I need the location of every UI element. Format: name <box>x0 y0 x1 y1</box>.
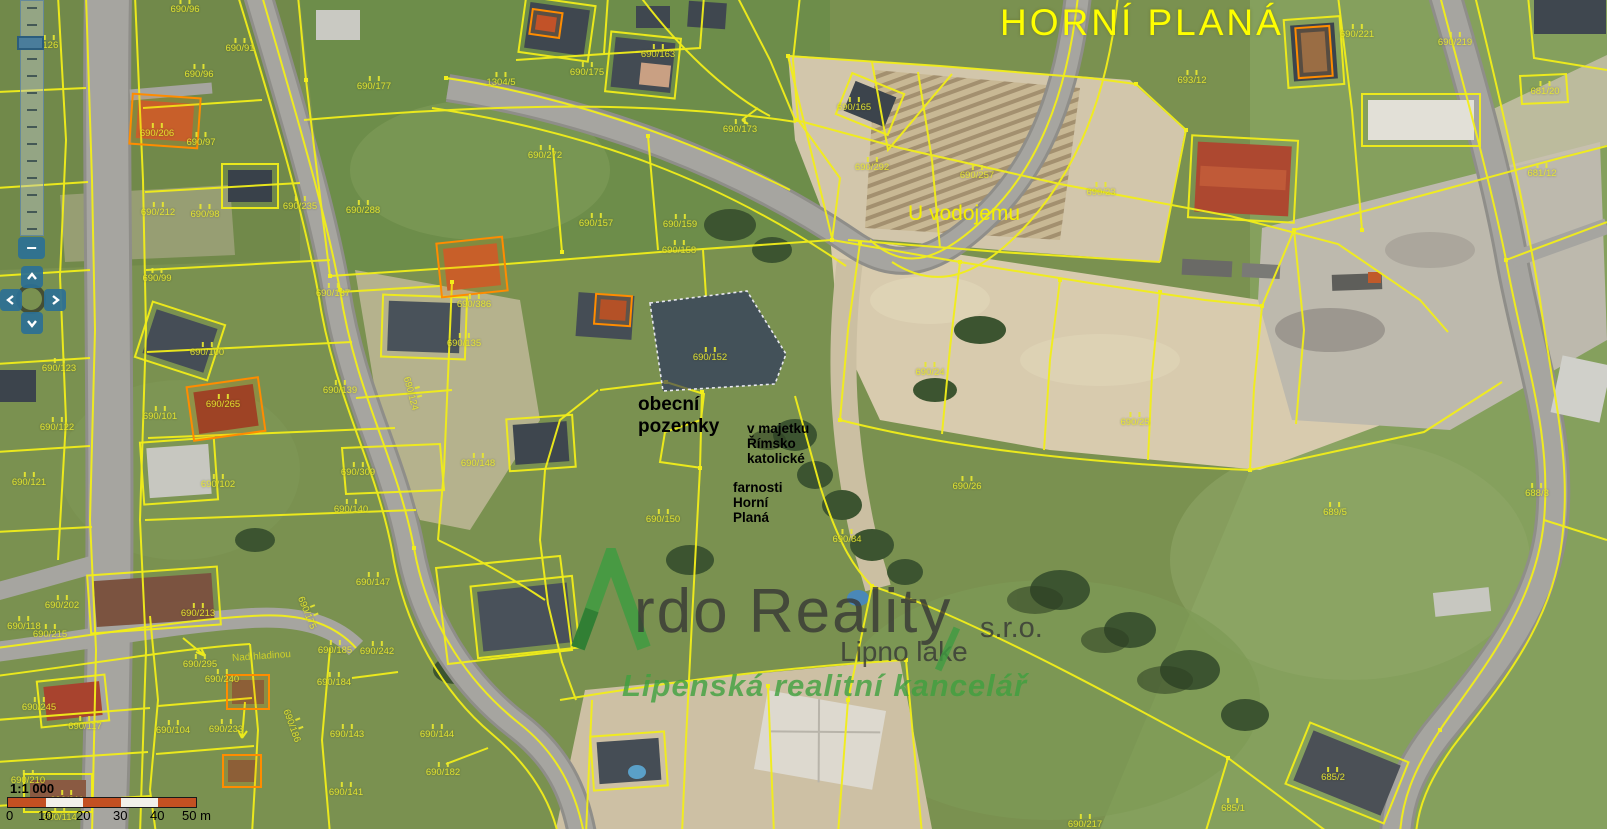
pan-down-button[interactable] <box>21 312 43 334</box>
scale-tick: 20 <box>76 808 90 823</box>
scale-tick: 10 <box>38 808 52 823</box>
church-ownership-annotation-2: farnosti Horní Planá <box>733 480 783 525</box>
zoom-out-button[interactable]: − <box>18 237 45 259</box>
scale-tick: 50 m <box>182 808 211 823</box>
pan-left-button[interactable] <box>0 289 22 311</box>
scale-tick: 40 <box>150 808 164 823</box>
chevron-down-icon <box>26 317 38 329</box>
chevron-up-icon <box>26 271 38 283</box>
area-label: U vodojemu <box>908 202 1020 226</box>
map-viewport[interactable]: 690/96690/91690/96690/1771304/5690/20669… <box>0 0 1607 829</box>
pan-up-button[interactable] <box>21 266 43 288</box>
chevron-left-icon <box>5 294 17 306</box>
scale-tick-labels: 0 10 20 30 40 50 m <box>6 808 221 824</box>
scale-tick: 30 <box>113 808 127 823</box>
aerial-basemap <box>0 0 1607 829</box>
scale-tick: 0 <box>6 808 13 823</box>
pan-right-button[interactable] <box>44 289 66 311</box>
map-scale: 1:1 000 0 10 20 30 40 50 m <box>6 781 221 827</box>
scale-ratio: 1:1 000 <box>10 781 54 796</box>
chevron-right-icon <box>49 294 61 306</box>
scale-bar <box>7 797 197 808</box>
municipal-land-annotation: obecní pozemky <box>638 394 719 438</box>
zoom-slider-handle[interactable] <box>17 36 44 50</box>
church-ownership-annotation: v majetku Římsko katolické <box>747 421 809 466</box>
town-label: HORNÍ PLANÁ <box>1000 2 1284 44</box>
